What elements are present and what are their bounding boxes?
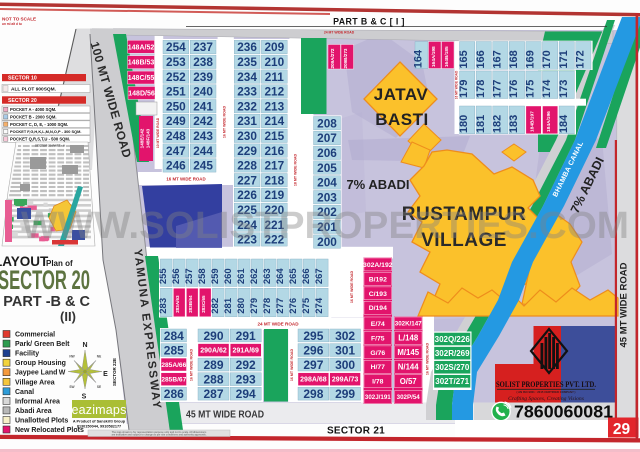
svg-text:293: 293	[236, 372, 256, 386]
svg-text:164A/198: 164A/198	[431, 46, 437, 67]
svg-text:Village Area: Village Area	[15, 379, 55, 386]
svg-text:274: 274	[314, 297, 325, 314]
svg-text:259: 259	[210, 268, 221, 284]
svg-text:205: 205	[317, 161, 337, 175]
svg-text:237: 237	[193, 40, 213, 54]
svg-text:302Q/226: 302Q/226	[435, 335, 471, 344]
svg-text:285: 285	[164, 343, 184, 357]
svg-text:292: 292	[236, 358, 256, 372]
svg-text:282: 282	[210, 298, 221, 314]
svg-text:16 MT WIDE ROAD: 16 MT WIDE ROAD	[350, 271, 354, 304]
svg-text:257: 257	[184, 268, 195, 284]
svg-text:213: 213	[264, 99, 284, 113]
svg-text:7% ABADI: 7% ABADI	[346, 177, 409, 192]
svg-text:241: 241	[193, 99, 213, 113]
svg-text:16 MT WIDE ROAD: 16 MT WIDE ROAD	[454, 70, 458, 99]
svg-text:POCKET B - 2000 SQM.: POCKET B - 2000 SQM.	[10, 114, 57, 119]
svg-text:180: 180	[458, 115, 470, 133]
svg-text:Canal: Canal	[15, 389, 34, 396]
svg-text:296: 296	[303, 343, 323, 357]
svg-text:eazimaps: eazimaps	[71, 403, 126, 417]
svg-text:F/75: F/75	[371, 335, 385, 342]
svg-text:302T/271: 302T/271	[435, 377, 469, 386]
svg-text:291: 291	[236, 329, 256, 343]
svg-text:SECTOR 22E: SECTOR 22E	[112, 358, 117, 386]
svg-text:238: 238	[193, 55, 213, 69]
svg-text:8130150044, 9910582177: 8130150044, 9910582177	[77, 425, 121, 429]
svg-text:302A/192: 302A/192	[363, 262, 393, 269]
svg-text:G/76: G/76	[370, 350, 385, 357]
svg-text:165: 165	[458, 50, 470, 68]
svg-text:45 MT WIDE ROAD: 45 MT WIDE ROAD	[619, 262, 630, 347]
svg-text:211: 211	[265, 70, 284, 84]
svg-text:299: 299	[335, 387, 355, 401]
svg-text:POCKET C, D, E, - 1000 SQM.: POCKET C, D, E, - 1000 SQM.	[10, 122, 68, 127]
svg-text:un ml alt d tu: un ml alt d tu	[2, 22, 22, 26]
svg-text:are indicative and subject to: are indicative and subject to change as …	[112, 433, 207, 436]
svg-text:10 MT WIDE ROAD: 10 MT WIDE ROAD	[156, 117, 160, 148]
svg-text:184B/197: 184B/197	[530, 111, 536, 132]
svg-text:290A/62: 290A/62	[200, 348, 227, 355]
svg-text:L/148: L/148	[398, 334, 419, 343]
svg-text:184: 184	[558, 114, 570, 133]
svg-text:148F/143: 148F/143	[146, 128, 151, 148]
svg-text:295: 295	[303, 329, 323, 343]
svg-text:217: 217	[264, 159, 284, 173]
svg-text:258: 258	[197, 268, 208, 284]
svg-text:244: 244	[193, 144, 213, 158]
svg-text:SECTOR 20: SECTOR 20	[0, 265, 90, 295]
svg-text:252: 252	[166, 70, 186, 84]
svg-text:182: 182	[491, 115, 503, 133]
svg-text:Unallotted Plots: Unallotted Plots	[15, 418, 68, 425]
svg-text:184A/196: 184A/196	[546, 111, 552, 132]
svg-text:288: 288	[203, 372, 223, 386]
svg-text:289: 289	[203, 358, 223, 372]
svg-text:171: 171	[558, 50, 570, 68]
svg-text:302: 302	[335, 329, 355, 343]
svg-text:Commercial: Commercial	[15, 332, 55, 339]
svg-text:24 MT WIDE ROAD: 24 MT WIDE ROAD	[324, 30, 355, 34]
svg-text:247: 247	[166, 144, 186, 158]
svg-text:263: 263	[262, 268, 273, 284]
svg-text:164B/185: 164B/185	[444, 46, 450, 67]
svg-text:16 MT WIDE ROAD: 16 MT WIDE ROAD	[166, 177, 205, 182]
svg-text:BASTI: BASTI	[375, 110, 429, 129]
svg-text:176: 176	[508, 80, 520, 98]
svg-text:209: 209	[264, 40, 284, 54]
svg-text:E/74: E/74	[371, 321, 385, 328]
svg-text:277: 277	[275, 298, 286, 314]
svg-text:302S/270: 302S/270	[435, 363, 470, 372]
svg-text:New Relocated Plots: New Relocated Plots	[15, 427, 84, 434]
svg-text:283A/63: 283A/63	[175, 295, 180, 313]
svg-text:172: 172	[574, 50, 586, 68]
svg-text:C/193: C/193	[369, 291, 387, 298]
svg-text:NOT TO SCALE: NOT TO SCALE	[2, 17, 36, 22]
svg-text:WWW.SOLISTPROPERTIES.COM: WWW.SOLISTPROPERTIES.COM	[21, 205, 629, 247]
svg-text:W: W	[59, 370, 66, 377]
svg-text:N: N	[82, 342, 87, 349]
svg-text:Jaypee Land: Jaypee Land	[15, 370, 57, 377]
svg-text:Abadi Area: Abadi Area	[15, 408, 52, 415]
svg-text:219: 219	[264, 188, 284, 202]
svg-text:POCKET Q,R,S,T,U - 500 SQM.: POCKET Q,R,S,T,U - 500 SQM.	[10, 137, 70, 142]
svg-text:266: 266	[301, 268, 312, 284]
svg-text:283: 283	[158, 298, 169, 314]
svg-text:297: 297	[303, 358, 323, 372]
svg-text:232: 232	[237, 99, 257, 113]
svg-text:POCKET F,G,H,K,L,M,N,O,P -: POCKET F,G,H,K,L,M,N,O,P - 300 SQM.	[10, 129, 81, 134]
svg-text:260: 260	[223, 268, 234, 284]
svg-text:215: 215	[264, 129, 284, 143]
svg-text:PART B & C [ I ]: PART B & C [ I ]	[333, 17, 405, 27]
svg-text:ALL PLOT 900SQM.: ALL PLOT 900SQM.	[11, 87, 56, 93]
svg-text:204: 204	[317, 176, 337, 190]
svg-text:SE: SE	[97, 385, 101, 389]
svg-text:291A/69: 291A/69	[232, 348, 259, 355]
svg-text:148A/52: 148A/52	[128, 44, 155, 51]
svg-text:286: 286	[164, 387, 184, 401]
svg-text:POCKET A - 4000 SQM.: POCKET A - 4000 SQM.	[10, 107, 56, 112]
svg-text:179: 179	[458, 80, 470, 98]
svg-text:175: 175	[525, 80, 537, 98]
svg-text:Group Housing: Group Housing	[15, 360, 66, 367]
svg-text:45 MT WIDE ROAD: 45 MT WIDE ROAD	[186, 409, 264, 421]
svg-text:283C/65: 283C/65	[201, 295, 206, 313]
svg-text:SOLIST PROPERTIES PVT. LTD.: SOLIST PROPERTIES PVT. LTD.	[496, 380, 596, 389]
svg-text:275: 275	[301, 297, 312, 314]
svg-text:229: 229	[237, 144, 257, 158]
svg-text:148E/142: 148E/142	[140, 128, 145, 148]
svg-text:276: 276	[288, 298, 299, 314]
svg-text:178: 178	[475, 80, 487, 98]
svg-text:212: 212	[264, 85, 284, 99]
svg-text:248: 248	[166, 129, 186, 143]
svg-text:216: 216	[264, 144, 284, 158]
svg-text:287: 287	[203, 387, 223, 401]
svg-text:210: 210	[264, 55, 284, 69]
svg-text:302R/269: 302R/269	[435, 349, 470, 358]
svg-text:M/145: M/145	[397, 348, 419, 357]
svg-text:Facility: Facility	[15, 351, 39, 358]
svg-text:170: 170	[541, 50, 553, 68]
svg-text:249: 249	[166, 114, 186, 128]
svg-text:S: S	[82, 394, 87, 401]
svg-text:302P/54: 302P/54	[397, 394, 421, 401]
svg-text:209B/273: 209B/273	[343, 48, 348, 68]
svg-text:A Product of Sanskriti Group: A Product of Sanskriti Group	[73, 420, 126, 424]
svg-text:227: 227	[237, 173, 257, 187]
svg-text:SECTOR 21: SECTOR 21	[327, 426, 385, 437]
svg-text:168: 168	[508, 50, 520, 68]
svg-text:240: 240	[193, 85, 213, 99]
svg-text:B/192: B/192	[369, 276, 387, 283]
svg-text:261: 261	[236, 268, 247, 285]
svg-text:JATAV: JATAV	[374, 85, 429, 104]
svg-text:278: 278	[262, 298, 273, 314]
svg-text:262: 262	[249, 268, 260, 284]
svg-text:164: 164	[413, 49, 425, 68]
svg-text:18 MT WIDE ROAD: 18 MT WIDE ROAD	[294, 154, 298, 187]
svg-text:SECTOR 10: SECTOR 10	[8, 76, 37, 82]
svg-text:N/144: N/144	[398, 363, 419, 372]
svg-text:148C/55: 148C/55	[128, 75, 155, 82]
svg-text:294: 294	[236, 387, 256, 401]
svg-text:29: 29	[613, 421, 631, 438]
svg-text:NW: NW	[69, 355, 74, 359]
svg-text:SECTOR 20 PART - A: SECTOR 20 PART - A	[35, 144, 66, 148]
svg-text:177: 177	[491, 80, 503, 98]
svg-text:265: 265	[288, 268, 299, 285]
svg-text:233: 233	[237, 85, 257, 99]
svg-text:230: 230	[237, 129, 257, 143]
svg-text:148B/53: 148B/53	[128, 60, 155, 67]
svg-text:298A/68: 298A/68	[300, 377, 327, 384]
svg-text:255: 255	[158, 268, 169, 285]
svg-text:234: 234	[237, 70, 257, 84]
svg-text:D/194: D/194	[369, 305, 387, 312]
svg-text:16 MT WIDE ROAD: 16 MT WIDE ROAD	[425, 343, 429, 376]
svg-text:226: 226	[237, 188, 257, 202]
svg-text:285A/66: 285A/66	[161, 362, 186, 369]
svg-text:209A/272: 209A/272	[330, 48, 335, 68]
svg-text:283B/64: 283B/64	[188, 295, 193, 313]
svg-text:254: 254	[166, 40, 186, 54]
svg-text:167: 167	[491, 50, 503, 68]
svg-text:16 MT WIDE ROAD: 16 MT WIDE ROAD	[223, 106, 227, 139]
svg-text:298: 298	[303, 387, 323, 401]
svg-text:Park/ Green Belt: Park/ Green Belt	[15, 341, 70, 348]
svg-text:174: 174	[541, 79, 553, 98]
svg-text:245: 245	[193, 159, 213, 173]
svg-text:279: 279	[249, 298, 260, 314]
svg-text:169: 169	[525, 50, 537, 68]
svg-text:SECTOR 20: SECTOR 20	[8, 98, 37, 104]
svg-text:I/78: I/78	[372, 379, 384, 386]
svg-text:208: 208	[317, 116, 337, 130]
svg-text:(II): (II)	[60, 309, 76, 324]
svg-text:251: 251	[166, 85, 186, 99]
svg-text:235: 235	[237, 55, 257, 69]
svg-text:181: 181	[475, 115, 487, 133]
svg-text:302J/191: 302J/191	[365, 394, 391, 401]
svg-text:256: 256	[171, 268, 182, 284]
svg-text:250: 250	[166, 99, 186, 113]
svg-text:7860060081: 7860060081	[514, 402, 613, 422]
svg-text:284: 284	[164, 329, 184, 343]
svg-text:Informal Area: Informal Area	[15, 398, 60, 405]
svg-text:H/77: H/77	[371, 364, 386, 371]
svg-text:203: 203	[317, 190, 337, 204]
svg-text:218: 218	[264, 173, 284, 187]
svg-text:236: 236	[237, 40, 257, 54]
svg-text:300: 300	[335, 358, 355, 372]
svg-text:206: 206	[317, 146, 337, 160]
svg-text:207: 207	[317, 131, 337, 145]
svg-text:228: 228	[237, 159, 257, 173]
svg-text:NE: NE	[97, 355, 101, 359]
svg-text:281: 281	[223, 297, 234, 314]
svg-text:148D/56: 148D/56	[128, 91, 155, 98]
svg-text:( AN ISO 9001 : 2015 CERTIFIED: ( AN ISO 9001 : 2015 CERTIFIED COMPANY )	[516, 390, 575, 394]
svg-text:243: 243	[193, 129, 213, 143]
svg-text:285B/67: 285B/67	[161, 377, 186, 384]
svg-text:SW: SW	[69, 385, 74, 389]
svg-text:280: 280	[236, 298, 247, 314]
svg-text:239: 239	[193, 70, 213, 84]
svg-text:253: 253	[166, 55, 186, 69]
svg-text:24 MT WIDE ROAD: 24 MT WIDE ROAD	[257, 321, 299, 326]
svg-text:166: 166	[475, 50, 487, 68]
svg-text:16 MT WIDE ROAD: 16 MT WIDE ROAD	[290, 349, 294, 382]
svg-text:173: 173	[558, 80, 570, 98]
svg-text:290: 290	[203, 329, 223, 343]
svg-text:299A/73: 299A/73	[332, 377, 359, 384]
svg-text:214: 214	[264, 114, 284, 128]
svg-text:231: 231	[237, 114, 257, 128]
svg-text:16 MT WIDE ROAD: 16 MT WIDE ROAD	[189, 349, 193, 382]
svg-text:246: 246	[166, 159, 186, 173]
svg-text:O/57: O/57	[400, 377, 417, 386]
svg-text:264: 264	[275, 268, 286, 285]
svg-text:PART -B & C: PART -B & C	[3, 294, 90, 310]
svg-text:183: 183	[508, 115, 520, 133]
svg-text:E: E	[103, 371, 108, 378]
svg-text:301: 301	[335, 343, 355, 357]
svg-text:267: 267	[314, 268, 325, 284]
svg-text:302K/147: 302K/147	[395, 321, 422, 328]
svg-text:242: 242	[193, 114, 213, 128]
